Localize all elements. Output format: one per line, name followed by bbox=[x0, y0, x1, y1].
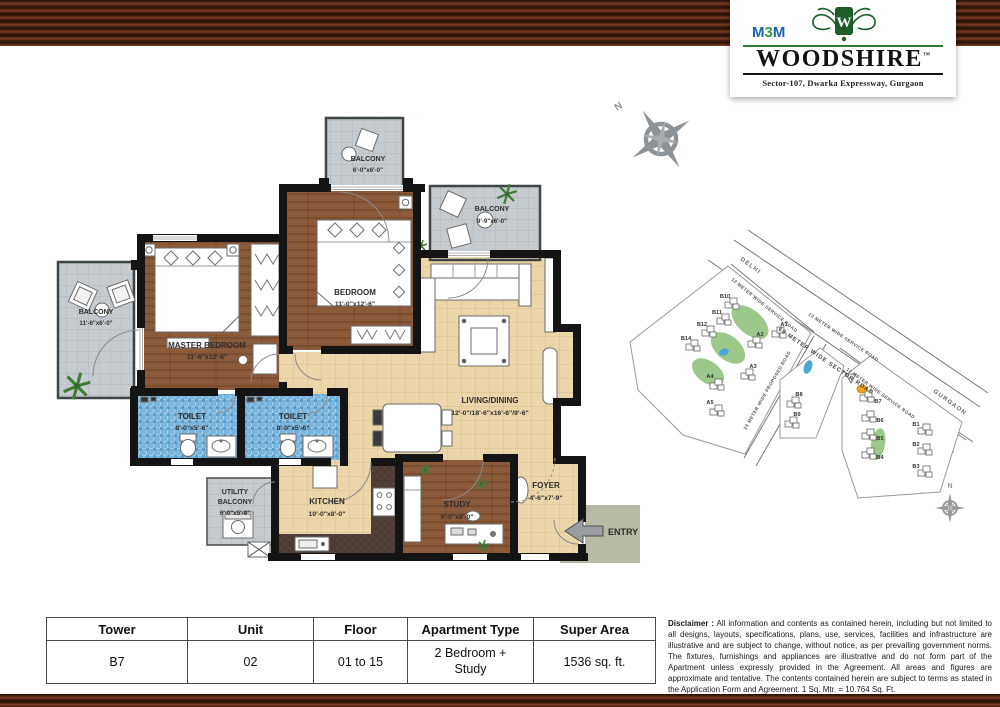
dining-table-icon bbox=[373, 404, 452, 452]
wood-footer-bar bbox=[0, 694, 1000, 707]
tower-label: A5 bbox=[706, 400, 713, 406]
disclaimer-label: Disclaimer : bbox=[668, 619, 714, 628]
table-header-row: Tower Unit Floor Apartment Type Super Ar… bbox=[47, 618, 656, 641]
table-header-cell: Tower bbox=[47, 618, 188, 641]
spec-table: Tower Unit Floor Apartment Type Super Ar… bbox=[46, 617, 656, 684]
tower-label: B2 bbox=[912, 442, 919, 448]
room-dims: 11'-6"x6'-0" bbox=[79, 320, 112, 327]
tower-label: B4 bbox=[876, 455, 884, 461]
room-label: UTILITY bbox=[222, 489, 249, 496]
brand-wordmark: WOODSHIRE™ bbox=[730, 46, 956, 73]
tower-label: B12 bbox=[697, 322, 707, 328]
room-label: BALCONY bbox=[351, 156, 386, 163]
floor-plan: ENTRY MASTER BEDROOM 11'-6"x12'-6" BEDRO… bbox=[55, 98, 655, 610]
room-label: MASTER BEDROOM bbox=[168, 341, 246, 350]
room-dims: 11'-0"x12'-6" bbox=[335, 301, 375, 308]
room-dims: 12'-0"/18'-6"x16'-6"/9'-6" bbox=[451, 410, 529, 417]
brand-name: WOODSHIRE bbox=[756, 46, 923, 72]
room-label: FOYER bbox=[532, 481, 560, 490]
room-dims: 9'-0"x8'-0" bbox=[440, 514, 473, 521]
tower-label: B10 bbox=[720, 294, 730, 300]
center-table-icon bbox=[459, 316, 509, 366]
room-label: BALCONY bbox=[218, 499, 253, 506]
table-header-cell: Unit bbox=[188, 618, 314, 641]
room-label: STUDY bbox=[443, 500, 471, 509]
room-label: KITCHEN bbox=[309, 497, 345, 506]
entry-label: ENTRY bbox=[608, 527, 638, 537]
room-label: TOILET bbox=[279, 412, 307, 421]
tower-label: B6 bbox=[876, 418, 883, 424]
compass-north-label: N bbox=[947, 483, 952, 490]
trademark-symbol: ™ bbox=[923, 51, 930, 59]
shaft-icon bbox=[248, 542, 270, 557]
tower-label: B8 bbox=[795, 392, 802, 398]
master-bed-icon bbox=[143, 244, 239, 348]
room-dims: 9'-9"x6'-0" bbox=[477, 218, 507, 225]
room-dims: 8'-0"x5'-6" bbox=[175, 425, 208, 432]
brochure-page: M3M W WOODSHIRE™ Sector-107, Dwarka Expr… bbox=[0, 0, 1000, 707]
m3m-letter: 3 bbox=[765, 24, 773, 41]
crest-letter: W bbox=[837, 15, 852, 31]
hob-icon bbox=[373, 488, 395, 516]
fridge-icon bbox=[313, 466, 337, 488]
room-label: BEDROOM bbox=[334, 288, 376, 297]
tower-label: A4 bbox=[706, 374, 714, 380]
tower-label: B5 bbox=[876, 436, 883, 442]
m3m-logo: M3M bbox=[752, 24, 785, 41]
room-dims: 8'-0"x5'-6" bbox=[276, 425, 309, 432]
room-dims: 6'-0"x5'-9" bbox=[220, 510, 250, 517]
tower-label: B1 bbox=[912, 422, 919, 428]
site-map: DELHI GURGAON 12 METER WIDE SERVICE ROAD… bbox=[628, 230, 996, 522]
tower-label: B3 bbox=[912, 464, 919, 470]
tower-label: B14 bbox=[681, 336, 692, 342]
woodshire-crest-icon: W bbox=[808, 3, 880, 45]
tower-label: A1 bbox=[780, 322, 787, 328]
room-dims: 11'-6"x12'-6" bbox=[187, 354, 227, 361]
table-row: B7 02 01 to 15 2 Bedroom + Study 1536 sq… bbox=[47, 641, 656, 684]
brand-logo: M3M W WOODSHIRE™ Sector-107, Dwarka Expr… bbox=[730, 0, 956, 97]
disclaimer-text: All information and contents as containe… bbox=[668, 619, 992, 694]
table-header-cell: Apartment Type bbox=[408, 618, 534, 641]
tower-label-highlighted: B7 bbox=[874, 399, 881, 405]
apartment-type-text: 2 Bedroom + Study bbox=[429, 646, 513, 677]
table-header-cell: Super Area bbox=[534, 618, 656, 641]
table-cell-super-area: 1536 sq. ft. bbox=[534, 641, 656, 684]
table-cell-floor: 01 to 15 bbox=[314, 641, 408, 684]
table-cell-apartment-type: 2 Bedroom + Study bbox=[408, 641, 534, 684]
room-label: LIVING/DINING bbox=[462, 396, 519, 405]
tower-label: A3 bbox=[749, 364, 756, 370]
room-dims: 6'-0"x6'-0" bbox=[353, 167, 383, 174]
room-label: BALCONY bbox=[79, 309, 114, 316]
table-cell-unit: 02 bbox=[188, 641, 314, 684]
tower-label: B11 bbox=[712, 310, 722, 316]
room-label: TOILET bbox=[178, 412, 206, 421]
table-cell-tower: B7 bbox=[47, 641, 188, 684]
tower-label: B9 bbox=[793, 412, 800, 418]
disclaimer: Disclaimer : All information and content… bbox=[668, 619, 992, 696]
m3m-letter: M bbox=[773, 24, 786, 41]
room-dims: 10'-0"x8'-0" bbox=[309, 511, 346, 518]
tower-label: A2 bbox=[756, 332, 763, 338]
room-dims: 4'-6"x7'-9" bbox=[529, 495, 562, 502]
brand-tagline: Sector-107, Dwarka Expressway, Gurgaon bbox=[730, 78, 956, 88]
table-header-cell: Floor bbox=[314, 618, 408, 641]
black-rule bbox=[743, 73, 943, 75]
room-label: BALCONY bbox=[475, 206, 510, 213]
m3m-letter: M bbox=[752, 24, 765, 41]
